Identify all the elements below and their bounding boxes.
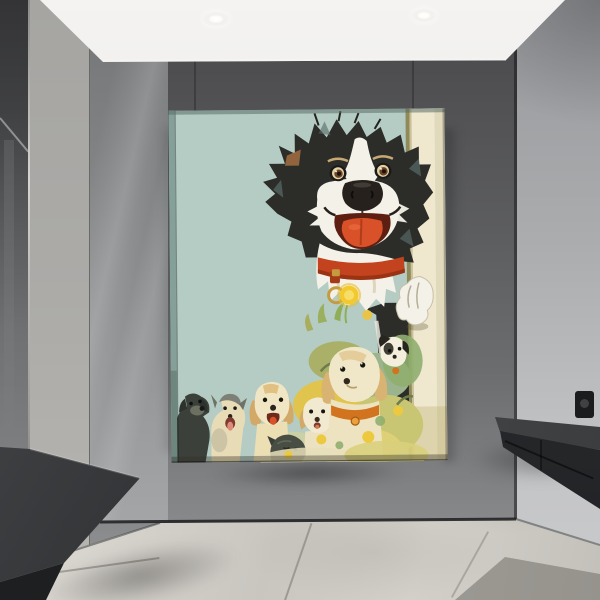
console-drawer-seam — [540, 440, 542, 470]
wall-panel-seam — [412, 58, 414, 112]
power-socket — [575, 391, 594, 418]
glossy-wall-panel — [89, 0, 168, 522]
collar-tag — [351, 417, 359, 425]
recessed-light — [203, 12, 229, 26]
wall-panel-seam — [194, 58, 196, 112]
hallway-scene — [0, 0, 600, 600]
dog-painting — [168, 108, 447, 463]
canvas-artwork — [168, 108, 447, 463]
mirror-reflection — [4, 140, 14, 440]
recessed-light — [412, 9, 436, 22]
